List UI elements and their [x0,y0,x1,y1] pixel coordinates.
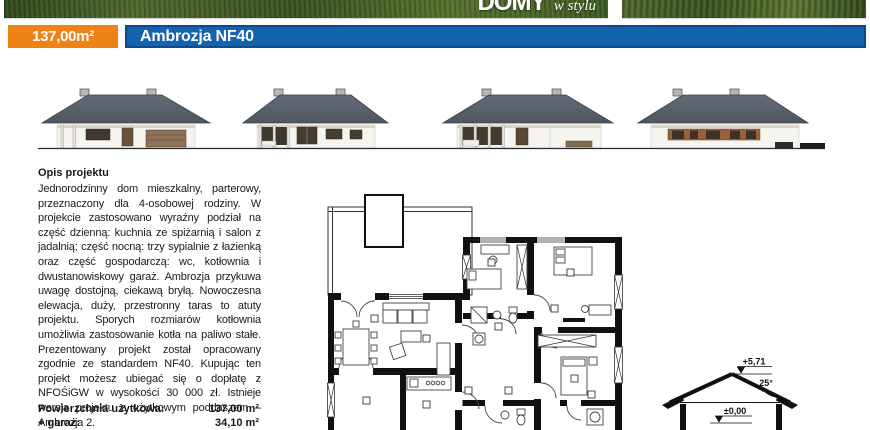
roof [638,95,808,123]
banner-photo-right [622,0,866,19]
side-door [516,128,528,145]
roof-angle-label: 25° [759,378,773,388]
elevation-drawings [30,86,830,156]
area-row-garage: + garaż: 34,10 m² [38,416,259,430]
roof [42,95,210,123]
window [86,129,110,140]
terrace [328,195,472,295]
brand-logo: DOMY w stylu [477,0,596,17]
ridge-level-marker: +5,71 [732,357,772,375]
description-body: Jednorodzinny dom mieszkalny, parterowy,… [38,182,261,430]
banner-photo-left: DOMY w stylu [4,0,608,19]
roof-outline [365,195,403,247]
elevation-side-left [443,89,613,148]
roof [243,95,388,123]
project-description: Opis projektu Jednorodzinny dom mieszkal… [38,167,261,430]
entry-door [122,128,133,146]
area-row-usable: Powierzchnia użytkowa: 137,00 m² [38,402,259,416]
ground-step [800,143,825,149]
terrace-step [775,142,793,148]
area-label: + garaż: [38,416,80,430]
window [326,129,342,139]
elevation-side-right [638,89,808,148]
floor-level-label: ±0,00 [724,406,746,416]
ridge-level-label: +5,71 [743,357,766,367]
elevation-front [42,89,210,148]
floor-level-marker: ±0,00 [710,406,752,423]
cross-section-drawing: +5,71 25° ±0,00 [660,345,868,430]
area-value: 137,00 m² [209,402,259,416]
section-roof [662,374,798,409]
brand-logo-text: DOMY [477,0,545,16]
floor-plan-drawing [305,187,650,430]
garage-door [146,130,186,147]
roof [443,95,613,123]
area-badge: 137,00m² [8,25,118,48]
project-title: Ambrozja NF40 [125,25,866,48]
area-summary: Powierzchnia użytkowa: 137,00 m² + garaż… [38,402,259,430]
area-label: Powierzchnia użytkowa: [38,402,165,416]
elevation-rear [243,89,388,148]
window [350,130,362,139]
project-sheet-page: DOMY w stylu 137,00m² Ambrozja NF40 [0,0,870,430]
planter [566,141,592,147]
description-heading: Opis projektu [38,167,261,179]
brand-logo-script: w stylu [554,0,596,14]
area-value: 34,10 m² [215,416,259,430]
